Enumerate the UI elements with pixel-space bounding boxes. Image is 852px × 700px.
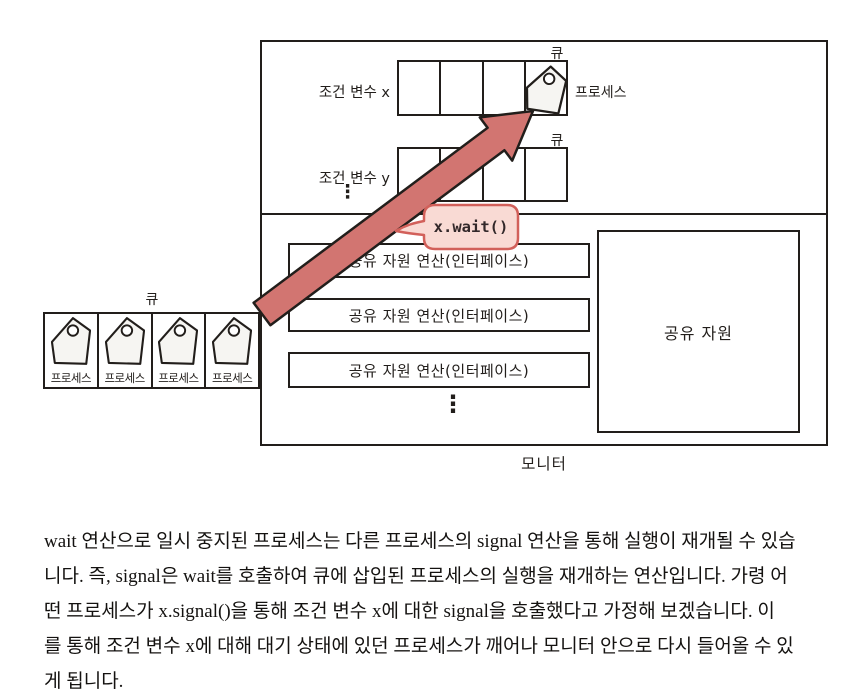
shared-op-row-label: 공유 자원 연산(인터페이스) <box>349 250 530 271</box>
process-label-right: 프로세스 <box>575 82 627 102</box>
external-queue-cell: 프로세스 <box>97 314 151 387</box>
queue-cell <box>482 62 524 114</box>
process-label: 프로세스 <box>153 370 205 386</box>
more-condition-vars-ellipsis: ⋮ <box>338 187 357 199</box>
page: 큐 큐 조건 변수 x 조건 변수 y 프로세스 ⋮ 공유 자원 연산(인터페이… <box>0 0 852 700</box>
condition-y-queue <box>397 147 568 202</box>
external-queue-cell: 프로세스 <box>151 314 205 387</box>
shared-op-row-2: 공유 자원 연산(인터페이스) <box>288 298 590 332</box>
shared-op-row-3: 공유 자원 연산(인터페이스) <box>288 352 590 388</box>
paragraph-line: wait 연산으로 일시 중지된 프로세스는 다른 프로세스의 signal 연… <box>44 524 834 559</box>
queue-cell <box>439 62 481 114</box>
external-queue-cell: 프로세스 <box>45 314 97 387</box>
queue-cell <box>524 62 566 114</box>
more-operations-ellipsis: ⋮ <box>441 397 465 412</box>
paragraph-line: 떤 프로세스가 x.signal()을 통해 조건 변수 x에 대한 signa… <box>44 594 834 629</box>
process-label: 프로세스 <box>99 370 151 386</box>
external-queue-cell: 프로세스 <box>204 314 258 387</box>
monitor-divider <box>260 213 828 215</box>
wait-bubble-label: x.wait() <box>424 205 518 249</box>
process-tag-icon <box>105 317 145 365</box>
paragraph-line: 게 됩니다. <box>44 664 834 699</box>
shared-resource-box: 공유 자원 <box>597 230 800 433</box>
paragraph-line: 니다. 즉, signal은 wait를 호출하여 큐에 삽입된 프로세스의 실… <box>44 559 834 594</box>
external-queue: 프로세스 프로세스 프로세스 프로세스 <box>43 312 260 389</box>
shared-op-row-label: 공유 자원 연산(인터페이스) <box>349 305 530 326</box>
process-tag-icon <box>158 317 198 365</box>
shared-op-row-label: 공유 자원 연산(인터페이스) <box>349 360 530 381</box>
external-queue-label: 큐 <box>132 289 172 309</box>
queue-cell <box>399 62 439 114</box>
paragraph-line: 를 통해 조건 변수 x에 대해 대기 상태에 있던 프로세스가 깨어나 모니터… <box>44 629 834 664</box>
process-tag-icon <box>212 317 252 365</box>
shared-resource-label: 공유 자원 <box>664 320 733 344</box>
body-paragraph: wait 연산으로 일시 중지된 프로세스는 다른 프로세스의 signal 연… <box>44 524 834 699</box>
queue-cell <box>524 149 566 200</box>
queue-cell <box>399 149 439 200</box>
monitor-label: 모니터 <box>260 452 828 474</box>
queue-cell <box>439 149 481 200</box>
condition-x-label: 조건 변수 x <box>300 81 390 102</box>
queue-cell <box>482 149 524 200</box>
queue-y-label: 큐 <box>537 130 577 150</box>
condition-x-queue <box>397 60 568 116</box>
queue-x-label: 큐 <box>537 43 577 63</box>
process-label: 프로세스 <box>206 370 258 386</box>
process-tag-icon <box>51 317 91 365</box>
process-label: 프로세스 <box>45 370 97 386</box>
